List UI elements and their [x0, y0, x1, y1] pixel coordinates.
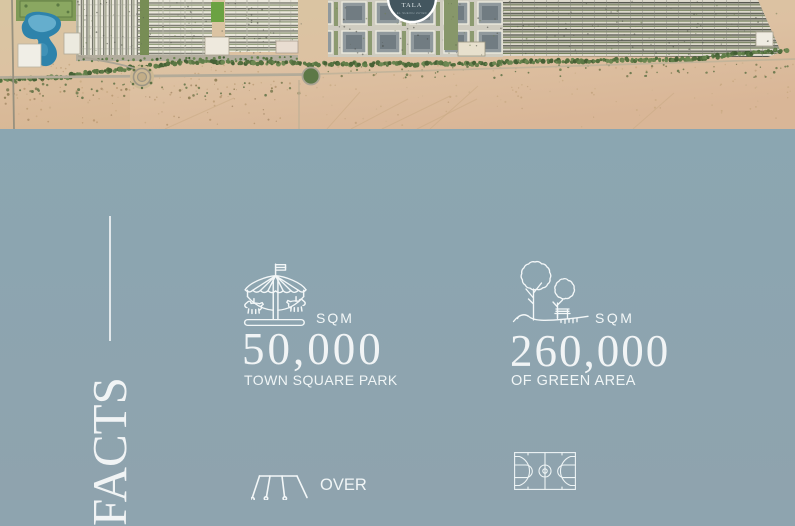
svg-text:EL SHEIKH ZAYED: EL SHEIKH ZAYED	[397, 11, 427, 15]
svg-text:TALA: TALA	[402, 2, 423, 9]
